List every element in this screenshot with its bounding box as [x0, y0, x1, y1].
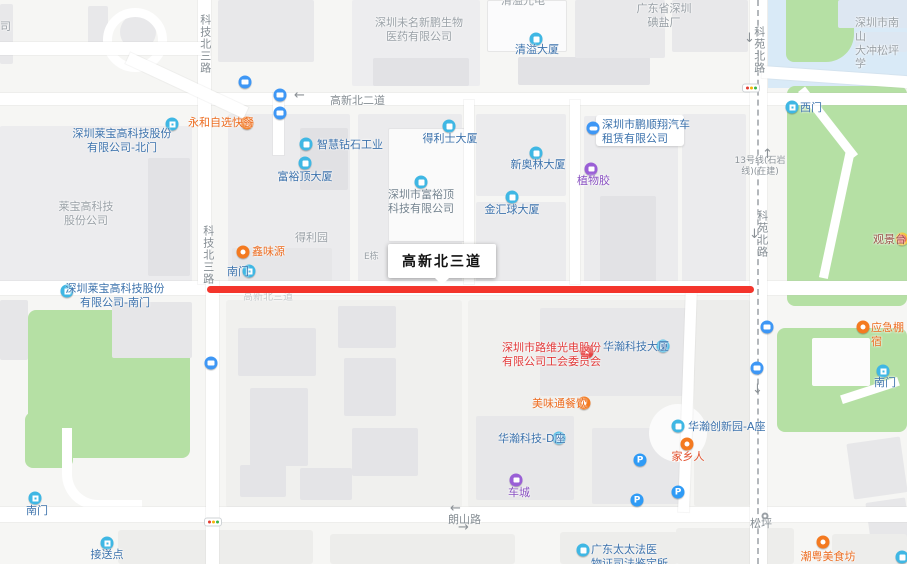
road-label: 松坪	[750, 517, 772, 531]
road-minor	[273, 93, 284, 155]
gate-icon[interactable]	[29, 492, 42, 505]
building	[240, 465, 286, 497]
poi-label[interactable]: 鑫味源	[252, 245, 285, 259]
poi-label[interactable]: 莱宝高科技 股份公司	[59, 200, 114, 228]
road-label: 科技北三路	[201, 225, 215, 285]
parking-icon[interactable]	[631, 494, 644, 507]
poi-label[interactable]: 车城	[508, 486, 530, 500]
building	[344, 358, 396, 416]
bus-stop-icon[interactable]	[205, 357, 218, 370]
poi-label[interactable]: 应急棚宿	[871, 321, 907, 349]
city-block	[676, 528, 794, 564]
arrow-right-icon: →	[458, 521, 469, 534]
building	[373, 58, 469, 86]
road-label: 高新北三道	[243, 292, 293, 305]
arrow-down-icon: ↓	[749, 228, 760, 241]
building-icon[interactable]	[896, 551, 907, 564]
station-marker	[762, 513, 769, 520]
poi-label[interactable]: 深圳未名新鹏生物 医药有限公司	[375, 16, 463, 44]
restaurant-icon[interactable]	[817, 536, 830, 549]
poi-label: E栋	[364, 252, 379, 263]
building	[250, 388, 308, 466]
arrow-down-icon: ↓	[744, 32, 755, 45]
poi-label[interactable]: 新奥林大厦	[511, 158, 566, 172]
building	[218, 0, 314, 62]
building	[600, 196, 656, 282]
poi-label[interactable]: 接送点	[91, 548, 124, 562]
poi-label[interactable]: 广东省深圳 碘盐厂	[637, 2, 692, 30]
building-icon[interactable]	[672, 420, 685, 433]
poi-label[interactable]: 华瀚创新园-A座	[688, 420, 766, 434]
poi-label[interactable]: 家乡人	[672, 450, 705, 464]
bus-stop-icon[interactable]	[239, 76, 252, 89]
arrow-down-icon: ↓	[752, 383, 763, 396]
building	[148, 158, 190, 276]
building	[112, 302, 192, 358]
building	[476, 114, 566, 196]
bus-stop-icon[interactable]	[274, 89, 287, 102]
poi-label[interactable]: 富裕顶大厦	[278, 170, 333, 184]
building	[352, 428, 418, 476]
poi-label[interactable]: 南门	[227, 265, 249, 279]
parking-icon[interactable]	[672, 486, 685, 499]
arrow-left-icon: ←	[294, 89, 305, 102]
poi-label[interactable]: 深圳市南山 大冲松坪学	[855, 16, 907, 71]
building-icon[interactable]	[415, 176, 428, 189]
poi-label[interactable]: 华瀚科技大厦	[603, 340, 669, 354]
car-rental-icon[interactable]	[587, 122, 600, 135]
poi-label[interactable]: 深圳市富裕顶 科技有限公司	[388, 188, 454, 216]
road-minor	[62, 428, 142, 510]
shop-icon[interactable]	[510, 474, 523, 487]
bus-stop-icon[interactable]	[751, 362, 764, 375]
highlighted-route[interactable]	[207, 286, 754, 293]
building-icon[interactable]	[300, 138, 313, 151]
shelter-icon[interactable]	[857, 321, 870, 334]
building	[0, 300, 28, 360]
poi-label[interactable]: 金汇球大厦	[485, 203, 540, 217]
poi-label[interactable]: 植物胶	[577, 174, 610, 188]
poi-label[interactable]: 永和自选快餐	[188, 116, 254, 130]
park-area	[787, 86, 907, 306]
building	[300, 468, 352, 500]
building-icon[interactable]	[443, 120, 456, 133]
building	[518, 57, 650, 85]
poi-label: 司	[0, 20, 11, 34]
poi-label[interactable]: 清溢大厦	[515, 43, 559, 57]
building	[238, 328, 316, 376]
road-minor	[125, 53, 248, 119]
poi-label[interactable]: 得利园	[295, 231, 328, 245]
road-label: 科技北三路	[198, 14, 212, 74]
poi-label[interactable]: 南门	[26, 504, 48, 518]
building-icon[interactable]	[299, 157, 312, 170]
restaurant-icon[interactable]	[237, 246, 250, 259]
traffic-light-icon	[742, 84, 760, 93]
building-icon[interactable]	[506, 191, 519, 204]
gate-icon[interactable]	[786, 101, 799, 114]
poi-label[interactable]: 深圳市鹏顺翔汽车 租赁有限公司	[602, 118, 690, 146]
poi-label[interactable]: 深圳莱宝高科技股份 有限公司-北门	[73, 127, 172, 155]
poi-label[interactable]: 南门	[874, 376, 896, 390]
parking-icon[interactable]	[634, 454, 647, 467]
route-callout[interactable]: 高新北三道	[388, 244, 496, 278]
poi-label[interactable]: 西门	[800, 101, 822, 115]
map-canvas[interactable]: 科技北三路 科技北三路 高新北二道 高新北三道 朗山路 科苑北路 科苑北路 松坪…	[0, 0, 907, 564]
bus-stop-icon[interactable]	[761, 321, 774, 334]
city-block	[330, 534, 515, 564]
arrow-left-icon: ←	[450, 502, 461, 515]
arrow-up-icon: ↑	[762, 148, 773, 161]
restaurant-icon[interactable]	[681, 438, 694, 451]
building	[0, 4, 13, 64]
bus-stop-icon[interactable]	[274, 107, 287, 120]
building	[812, 338, 870, 386]
poi-label[interactable]: 深圳市路维光电股份 有限公司工会委员会	[502, 341, 601, 369]
poi-label[interactable]: 深圳莱宝高科技股份 有限公司-南门	[66, 282, 165, 310]
poi-label[interactable]: 观景台	[873, 233, 906, 247]
road-label: 高新北二道	[330, 94, 385, 108]
building-icon[interactable]	[577, 544, 590, 557]
road-gaoxin-north-2	[0, 93, 907, 105]
traffic-light-icon	[204, 518, 222, 527]
poi-label[interactable]: 得利士大厦	[423, 132, 478, 146]
road-minor	[570, 100, 580, 284]
building	[846, 437, 907, 500]
poi-label[interactable]: 清溢光电	[501, 0, 545, 8]
road-minor	[0, 42, 210, 55]
building	[682, 114, 746, 283]
poi-label[interactable]: 智慧钻石工业	[317, 138, 383, 152]
poi-label[interactable]: 美味通餐饮	[532, 397, 587, 411]
building	[694, 300, 750, 506]
building	[338, 306, 396, 348]
poi-label[interactable]: 华瀚科技-D座	[498, 432, 565, 446]
poi-label[interactable]: 潮粤美食坊	[801, 550, 856, 564]
metro-line-label: 13号线(石岩 线)(在建)	[735, 156, 786, 179]
poi-label[interactable]: 广东太太法医 物证司法鉴定所	[591, 543, 668, 564]
